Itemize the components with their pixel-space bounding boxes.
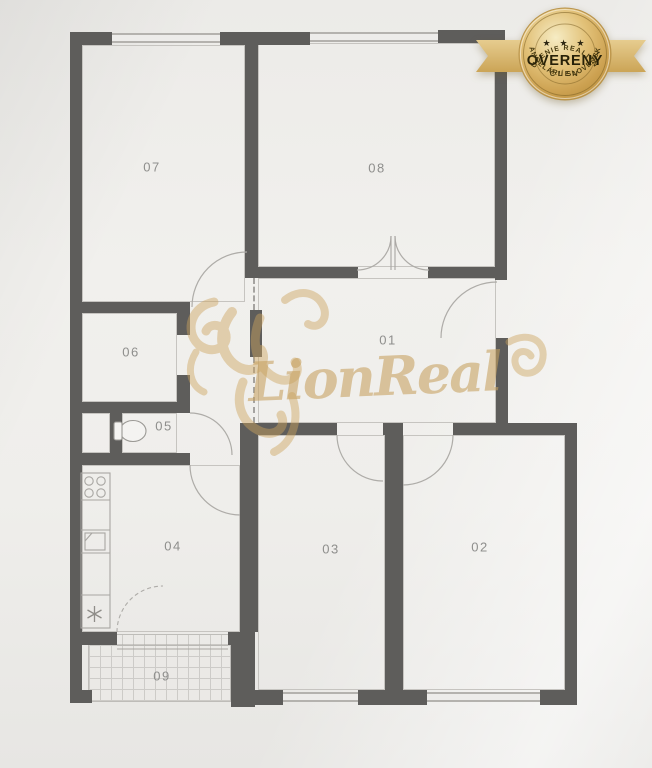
floorplan-photo: 07 08 06 05 01 04 03 02 09 LionReal: [0, 0, 652, 768]
verified-badge: ZDRUŽENIE REALITNÝCH ★ ★ ★ OVERENÝ ČLEN …: [470, 6, 652, 106]
room-label-05: 05: [155, 419, 172, 434]
room-07-outline: [82, 45, 245, 302]
wall-segment: [540, 690, 577, 705]
wall-segment: [70, 302, 190, 313]
room-08-outline: [258, 43, 495, 267]
room-label-09: 09: [153, 669, 170, 684]
window: [310, 32, 438, 42]
wall-segment: [70, 690, 92, 703]
wall-segment: [177, 302, 190, 335]
room-04-outline: [82, 465, 240, 632]
wall-segment: [70, 453, 190, 465]
wall-segment: [565, 435, 577, 690]
shaft-outline: [82, 413, 110, 453]
wall-segment: [240, 423, 258, 632]
wall-segment: [70, 402, 190, 413]
badge-stars: ★ ★ ★: [543, 39, 588, 49]
room-label-03: 03: [322, 542, 339, 557]
wall-segment: [76, 632, 117, 645]
wall-segment: [385, 435, 403, 690]
wall-segment: [228, 632, 250, 645]
wall-segment: [70, 32, 82, 690]
room-02-outline: [403, 435, 565, 690]
window: [427, 692, 540, 702]
wall-segment: [220, 32, 310, 45]
room-label-04: 04: [164, 539, 181, 554]
room-label-07: 07: [143, 160, 160, 175]
room-label-02: 02: [471, 540, 488, 555]
wall-segment: [453, 423, 577, 435]
room-label-08: 08: [368, 161, 385, 176]
wall-segment: [245, 40, 258, 278]
wall-segment: [245, 423, 337, 435]
room-label-06: 06: [122, 345, 139, 360]
open-passage-dashed: [253, 278, 255, 310]
wall-segment: [258, 267, 358, 278]
wall-segment: [358, 690, 427, 705]
window: [283, 692, 358, 702]
wall-segment: [428, 267, 507, 278]
room-03-outline: [258, 435, 385, 690]
window: [112, 33, 220, 43]
door-arc-room05: [190, 413, 232, 455]
wall-segment: [383, 423, 403, 435]
watermark-brand-text: LionReal: [247, 338, 530, 414]
